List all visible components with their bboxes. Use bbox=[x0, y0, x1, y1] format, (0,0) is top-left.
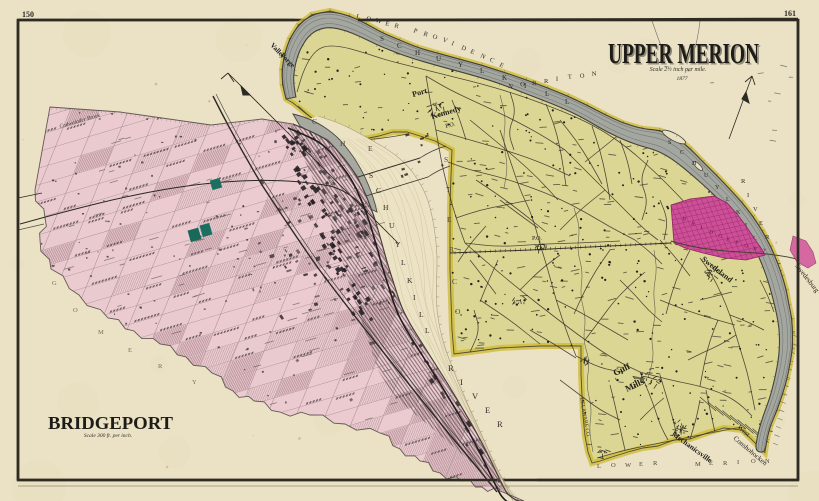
svg-text:H: H bbox=[383, 203, 389, 212]
svg-text:R: R bbox=[723, 460, 728, 467]
svg-text:V: V bbox=[753, 206, 758, 213]
svg-text:E: E bbox=[368, 144, 373, 153]
svg-text:R: R bbox=[448, 363, 454, 373]
svg-text:Y: Y bbox=[192, 379, 197, 386]
svg-text:E: E bbox=[128, 347, 132, 354]
svg-text:R: R bbox=[158, 363, 163, 370]
svg-text:T: T bbox=[446, 185, 451, 194]
svg-text:M: M bbox=[98, 329, 104, 336]
svg-text:Y: Y bbox=[458, 61, 463, 69]
svg-text:G: G bbox=[52, 280, 57, 287]
svg-text:I: I bbox=[460, 377, 463, 387]
svg-text:L: L bbox=[401, 258, 406, 267]
svg-text:E: E bbox=[639, 461, 643, 468]
svg-text:U: U bbox=[389, 221, 395, 230]
svg-text:L: L bbox=[545, 90, 549, 98]
svg-text:K: K bbox=[502, 74, 507, 82]
svg-text:C: C bbox=[397, 42, 402, 50]
svg-text:C: C bbox=[680, 150, 684, 156]
svg-text:H: H bbox=[415, 49, 420, 57]
svg-text:R: R bbox=[741, 178, 746, 185]
svg-text:H: H bbox=[692, 161, 697, 167]
svg-text:Scale 300 ft. per inch.: Scale 300 ft. per inch. bbox=[84, 432, 132, 439]
svg-text:S: S bbox=[380, 35, 384, 43]
svg-text:C: C bbox=[312, 117, 317, 126]
svg-text:L: L bbox=[419, 310, 424, 319]
svg-text:P.O.: P.O. bbox=[532, 236, 543, 242]
svg-text:U: U bbox=[436, 55, 441, 63]
svg-text:I: I bbox=[737, 459, 739, 466]
svg-text:N: N bbox=[765, 458, 770, 465]
svg-text:O: O bbox=[751, 458, 756, 465]
svg-text:R: R bbox=[497, 419, 503, 429]
svg-text:K: K bbox=[407, 276, 413, 285]
svg-text:V: V bbox=[472, 391, 479, 401]
svg-text:H: H bbox=[340, 139, 346, 148]
svg-text:I: I bbox=[556, 76, 558, 83]
svg-text:L: L bbox=[726, 197, 730, 203]
svg-text:R: R bbox=[544, 78, 549, 85]
svg-text:C: C bbox=[452, 277, 457, 286]
svg-text:W: W bbox=[625, 462, 632, 469]
svg-text:U: U bbox=[704, 173, 709, 179]
svg-text:S: S bbox=[668, 140, 671, 146]
svg-text:Y: Y bbox=[715, 185, 720, 191]
svg-text:C: C bbox=[376, 186, 381, 195]
svg-text:L: L bbox=[480, 67, 484, 75]
svg-text:M: M bbox=[695, 461, 701, 468]
svg-text:UPPER MERION: UPPER MERION bbox=[608, 39, 759, 70]
svg-text:BRIDGEPORT: BRIDGEPORT bbox=[48, 413, 173, 433]
svg-text:1877: 1877 bbox=[677, 76, 688, 82]
svg-text:S: S bbox=[444, 155, 448, 164]
svg-text:E: E bbox=[709, 460, 713, 467]
svg-text:O: O bbox=[455, 307, 461, 316]
svg-text:Scale 2½ inch per mile.: Scale 2½ inch per mile. bbox=[650, 66, 707, 73]
svg-text:L: L bbox=[425, 326, 430, 335]
svg-text:I: I bbox=[747, 192, 749, 199]
svg-text:161: 161 bbox=[784, 9, 796, 18]
svg-text:E: E bbox=[759, 220, 763, 227]
svg-text:T: T bbox=[568, 74, 572, 81]
svg-text:S: S bbox=[369, 171, 373, 180]
svg-text:E: E bbox=[447, 215, 452, 224]
svg-text:150: 150 bbox=[22, 10, 34, 19]
svg-text:R: R bbox=[765, 234, 770, 241]
svg-text:R: R bbox=[449, 245, 454, 254]
svg-text:L: L bbox=[597, 463, 601, 470]
svg-text:R: R bbox=[653, 460, 658, 467]
svg-text:E: E bbox=[485, 405, 490, 415]
svg-text:L: L bbox=[565, 98, 569, 106]
svg-text:O: O bbox=[73, 307, 78, 314]
svg-text:O: O bbox=[611, 462, 616, 469]
svg-text:O: O bbox=[520, 81, 525, 88]
